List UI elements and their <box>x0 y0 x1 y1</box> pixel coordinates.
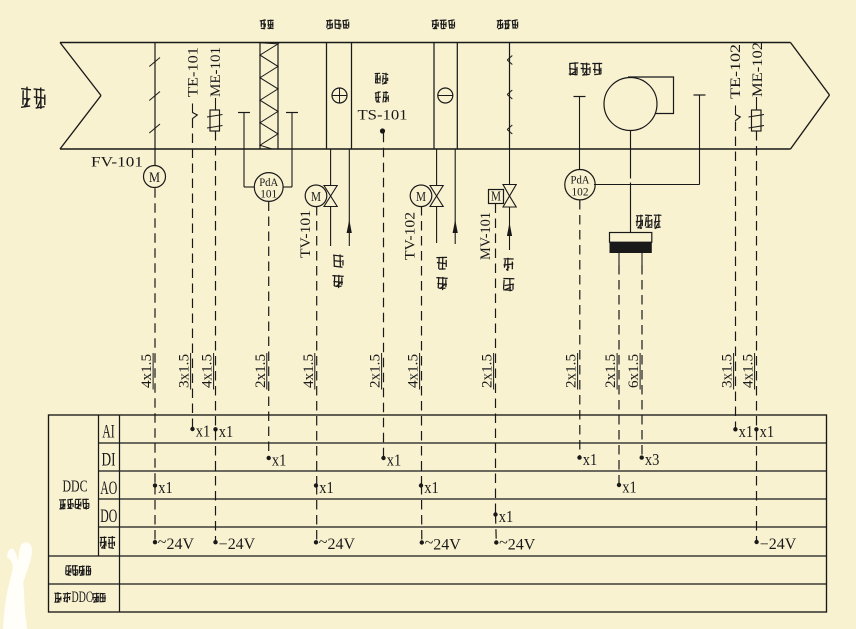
svg-text:ME-102: ME-102 <box>750 42 766 97</box>
svg-text:24V: 24V <box>508 536 536 553</box>
svg-text:x1: x1 <box>499 507 514 526</box>
svg-text:DDC: DDC <box>63 476 88 495</box>
svg-text:FV-101: FV-101 <box>91 155 143 171</box>
svg-text:x1: x1 <box>622 478 637 497</box>
svg-text:TE-102: TE-102 <box>728 44 744 99</box>
svg-text:x1: x1 <box>272 451 287 470</box>
svg-text:TS-101: TS-101 <box>358 108 408 124</box>
svg-text:AI: AI <box>102 421 115 442</box>
svg-text:~: ~ <box>319 534 328 551</box>
svg-text:PdA: PdA <box>571 175 591 187</box>
svg-text:x1: x1 <box>158 478 173 497</box>
svg-text:DDC: DDC <box>72 589 93 606</box>
svg-text:MV-101: MV-101 <box>478 212 494 260</box>
svg-text:DI: DI <box>102 450 116 471</box>
svg-text:−24V: −24V <box>760 536 797 553</box>
svg-text:PdA: PdA <box>259 177 279 189</box>
svg-text:x1: x1 <box>739 422 754 441</box>
svg-text:x1: x1 <box>424 478 439 497</box>
svg-text:~: ~ <box>499 534 508 551</box>
svg-text:ME-101: ME-101 <box>208 47 224 97</box>
svg-text:24V: 24V <box>167 536 195 553</box>
svg-text:24V: 24V <box>433 536 461 553</box>
svg-text:TV-102: TV-102 <box>403 212 419 260</box>
svg-text:101: 101 <box>260 189 277 201</box>
svg-text:x1: x1 <box>583 450 598 469</box>
svg-text:x1: x1 <box>196 422 211 441</box>
svg-text:~: ~ <box>158 534 167 551</box>
svg-text:TV-101: TV-101 <box>298 210 314 258</box>
svg-text:AO: AO <box>100 478 117 499</box>
svg-text:24V: 24V <box>328 536 356 553</box>
svg-text:M: M <box>149 170 160 186</box>
svg-text:x1: x1 <box>387 451 402 470</box>
svg-text:−24V: −24V <box>219 536 256 553</box>
svg-text:TE-101: TE-101 <box>186 47 202 97</box>
svg-text:x1: x1 <box>760 422 775 441</box>
svg-text:102: 102 <box>572 187 589 199</box>
svg-text:~: ~ <box>425 534 434 551</box>
svg-text:M: M <box>416 190 426 205</box>
svg-text:x1: x1 <box>319 478 334 497</box>
svg-text:M: M <box>491 189 501 204</box>
svg-text:x1: x1 <box>219 422 234 441</box>
svg-text:x3: x3 <box>645 450 660 469</box>
svg-text:DO: DO <box>100 506 117 527</box>
svg-text:M: M <box>311 190 321 205</box>
